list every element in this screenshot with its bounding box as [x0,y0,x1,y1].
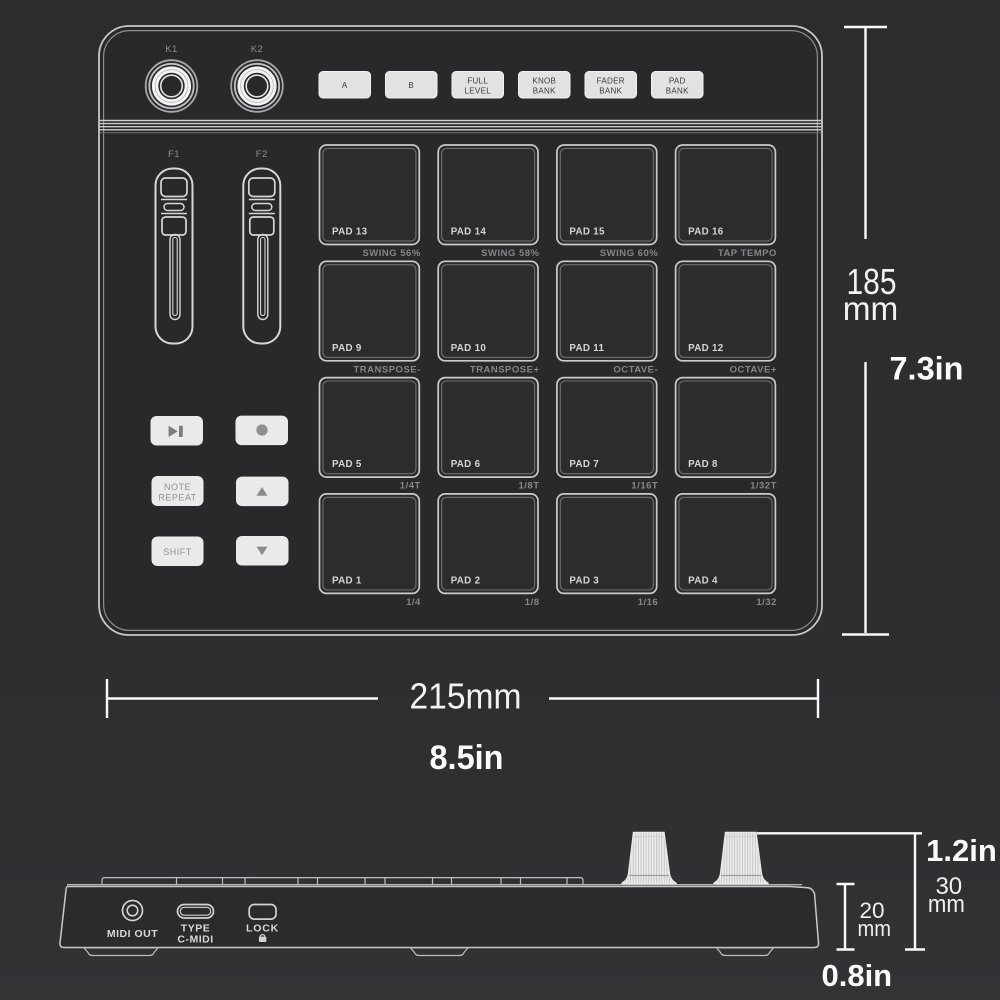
svg-text:215mm: 215mm [410,676,522,717]
svg-text:FULL: FULL [467,77,488,86]
svg-text:SWING 58%: SWING 58% [481,248,539,259]
svg-text:8.5in: 8.5in [430,739,504,777]
svg-text:PAD 5: PAD 5 [332,459,362,470]
svg-text:PAD 4: PAD 4 [688,575,718,586]
svg-text:OCTAVE+: OCTAVE+ [730,364,777,375]
svg-text:mm: mm [843,290,899,327]
svg-text:MIDI OUT: MIDI OUT [107,928,158,940]
svg-text:PAD 10: PAD 10 [451,343,487,354]
svg-text:1/8: 1/8 [525,597,540,608]
svg-text:PAD 7: PAD 7 [569,459,599,470]
svg-text:PAD 8: PAD 8 [688,459,718,470]
svg-text:SWING 56%: SWING 56% [362,248,420,259]
svg-text:SWING 60%: SWING 60% [600,248,658,259]
svg-text:FADER: FADER [597,77,625,86]
svg-text:0.8in: 0.8in [821,958,892,993]
svg-text:BANK: BANK [666,87,689,96]
svg-text:1/16T: 1/16T [631,481,658,492]
svg-text:1/32: 1/32 [756,597,777,608]
svg-text:1/16: 1/16 [638,597,659,608]
svg-text:1.2in: 1.2in [926,833,997,868]
svg-text:mm: mm [928,891,965,918]
svg-text:K1: K1 [165,44,178,55]
svg-text:K2: K2 [251,44,264,55]
svg-text:BANK: BANK [599,87,622,96]
svg-text:PAD 16: PAD 16 [688,227,724,238]
svg-text:PAD 13: PAD 13 [332,227,368,238]
svg-text:PAD 2: PAD 2 [451,575,481,586]
svg-text:1/4T: 1/4T [400,481,421,492]
svg-text:1/32T: 1/32T [750,481,777,492]
svg-text:PAD 9: PAD 9 [332,343,362,354]
svg-text:PAD 15: PAD 15 [569,227,605,238]
svg-text:PAD: PAD [669,77,686,86]
svg-text:PAD 11: PAD 11 [569,343,604,354]
svg-text:NOTE: NOTE [164,482,191,492]
svg-text:PAD 14: PAD 14 [451,227,487,238]
svg-text:F1: F1 [168,149,180,160]
svg-text:REPEAT: REPEAT [158,493,196,503]
svg-text:PAD 6: PAD 6 [451,459,481,470]
svg-text:LEVEL: LEVEL [465,87,492,96]
svg-text:1/8T: 1/8T [518,481,539,492]
svg-text:B: B [408,81,414,90]
svg-text:A: A [342,81,348,90]
svg-text:1/4: 1/4 [406,597,421,608]
svg-text:mm: mm [858,916,892,941]
svg-text:KNOB: KNOB [532,77,556,86]
svg-text:TRANSPOSE-: TRANSPOSE- [354,364,421,375]
svg-text:PAD 1: PAD 1 [332,575,362,586]
svg-text:F2: F2 [256,149,268,160]
svg-text:C-MIDI: C-MIDI [177,934,213,946]
svg-text:TAP TEMPO: TAP TEMPO [718,248,777,259]
svg-text:LOCK: LOCK [246,923,279,935]
svg-text:OCTAVE-: OCTAVE- [613,364,658,375]
svg-text:SHIFT: SHIFT [163,547,192,557]
svg-text:7.3in: 7.3in [889,351,963,387]
svg-text:TRANSPOSE+: TRANSPOSE+ [470,364,540,375]
svg-text:PAD 3: PAD 3 [569,575,599,586]
svg-text:PAD 12: PAD 12 [688,343,724,354]
svg-text:BANK: BANK [533,87,556,96]
